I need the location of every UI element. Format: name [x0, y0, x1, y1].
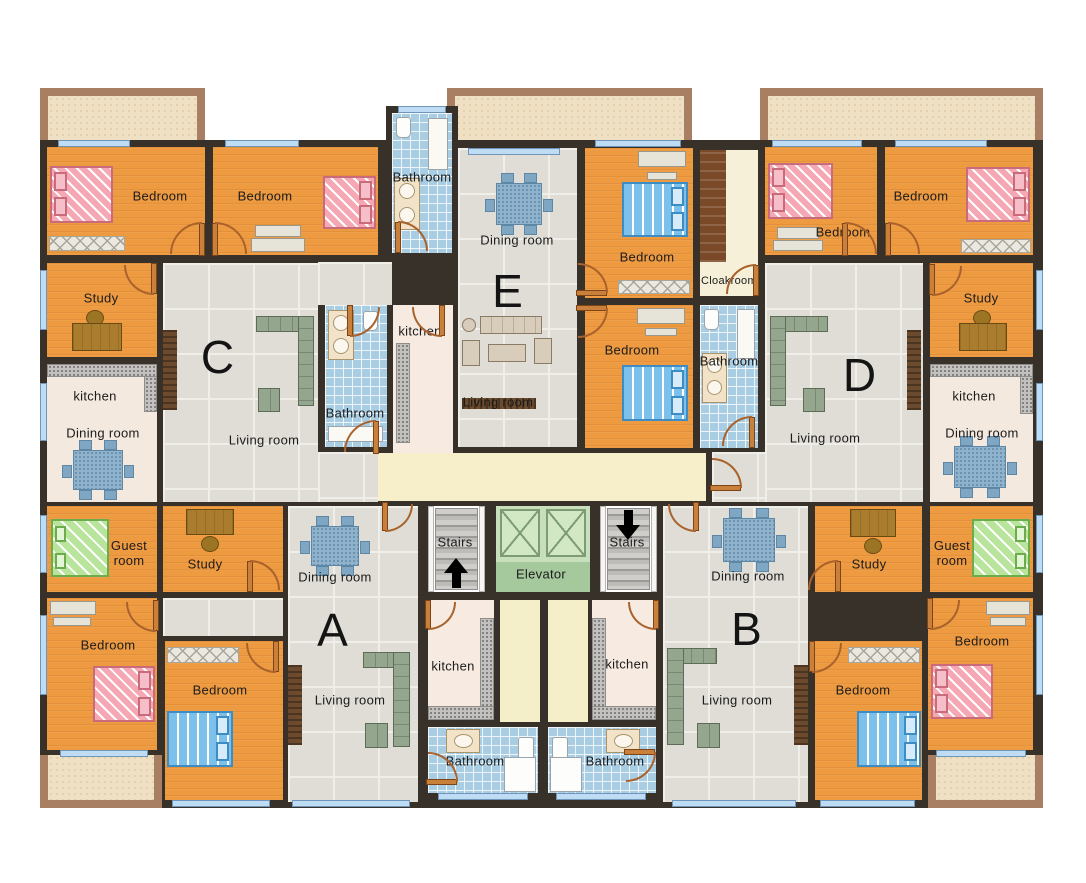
pillow: [935, 694, 948, 713]
pillow: [359, 181, 372, 200]
window: [895, 140, 987, 147]
double-bed: [323, 176, 376, 229]
door: [398, 221, 428, 251]
window: [772, 140, 862, 147]
pillow: [138, 671, 151, 690]
stair-rail: [428, 506, 434, 592]
window: [468, 148, 560, 155]
door: [428, 752, 458, 782]
pillow: [904, 742, 917, 761]
door: [628, 602, 656, 630]
stair-rail: [651, 506, 657, 592]
desk-chair-icon: [201, 536, 219, 552]
room-label: Living room: [702, 693, 773, 708]
toilet-icon: [704, 309, 719, 330]
bathtub-icon: [428, 118, 448, 170]
room-label: Bedroom: [133, 189, 188, 204]
armchair: [258, 388, 280, 412]
unit-letter-c: C: [201, 330, 235, 384]
closet: [167, 647, 239, 663]
window: [40, 383, 47, 441]
dining-table: [73, 450, 123, 490]
kitchen-counter: [930, 364, 1033, 377]
balcony-top-left: [40, 88, 205, 147]
double-bed: [768, 163, 833, 219]
door: [930, 600, 960, 630]
window: [936, 750, 1026, 757]
balcony-top-center: [447, 88, 692, 148]
pillow: [671, 212, 684, 231]
stair-rail: [479, 506, 485, 592]
dresser: [251, 238, 305, 252]
unit-letter-d: D: [843, 348, 877, 402]
room-label: Stairs: [609, 535, 644, 550]
double-bed: [931, 664, 993, 719]
armchair: [697, 723, 720, 748]
room-label: Bathroom: [326, 406, 385, 421]
door: [250, 560, 280, 590]
pillow: [772, 193, 785, 212]
pillow: [904, 716, 917, 735]
kitchen-counter: [480, 618, 494, 720]
window: [1036, 615, 1043, 695]
sofa: [298, 316, 314, 406]
guest-bed: [51, 519, 109, 577]
double-bed: [857, 711, 921, 767]
pillow: [1013, 197, 1026, 216]
unit-letter-b: B: [731, 602, 763, 656]
window: [58, 140, 130, 147]
pillow: [1013, 172, 1026, 191]
room-label: Bedroom: [238, 189, 293, 204]
window: [556, 793, 646, 800]
dining-table: [311, 526, 359, 566]
window: [172, 800, 270, 807]
room-label: Study: [84, 291, 119, 306]
pillow: [138, 697, 151, 716]
door: [888, 222, 920, 254]
window: [40, 615, 47, 695]
pillow: [671, 187, 684, 206]
corridor: [378, 453, 706, 501]
room-label: Bathroom: [700, 354, 759, 369]
dresser: [647, 172, 677, 180]
dining-table: [496, 183, 542, 225]
door: [126, 602, 156, 632]
dresser: [50, 601, 96, 615]
room-label: Bedroom: [81, 638, 136, 653]
room-label: Study: [852, 557, 887, 572]
armchair: [534, 338, 552, 364]
pillow: [54, 172, 67, 191]
utility-shaft-right: [548, 600, 588, 722]
window: [225, 140, 299, 147]
tv-cabinet: [794, 665, 808, 745]
window: [595, 140, 681, 147]
unit-letter-e: E: [492, 264, 524, 318]
room-label: Stairs: [437, 535, 472, 550]
room-label: Dining room: [480, 233, 553, 248]
dresser: [986, 601, 1030, 615]
door: [578, 308, 608, 338]
room-label: kitchen: [431, 659, 474, 674]
room-label: Living room: [229, 433, 300, 448]
door: [428, 602, 456, 630]
door: [246, 643, 276, 673]
kitchen-counter: [592, 618, 606, 720]
kitchen-counter: [47, 364, 157, 377]
door: [170, 222, 202, 254]
closet: [961, 239, 1031, 253]
window: [292, 800, 410, 807]
dresser: [53, 617, 91, 626]
balcony-top-right: [760, 88, 1043, 147]
shower-icon: [504, 757, 536, 792]
balcony-bottom-right: [928, 755, 1043, 808]
door: [215, 222, 247, 254]
door: [350, 307, 380, 337]
guest-bed: [972, 519, 1030, 577]
armchair: [462, 340, 480, 366]
elevator-car: [500, 509, 540, 557]
room-c-living: [163, 263, 318, 502]
wardrobe: [700, 150, 726, 262]
room-label: Bedroom: [894, 189, 949, 204]
door: [668, 504, 696, 532]
coffee-table: [488, 344, 526, 362]
double-bed: [50, 166, 113, 223]
window: [40, 515, 47, 573]
double-bed: [622, 365, 688, 421]
desk: [72, 323, 122, 351]
dresser: [773, 240, 823, 251]
window: [40, 270, 47, 330]
door: [808, 560, 838, 590]
pillow: [216, 742, 229, 761]
door: [845, 222, 877, 254]
room-label: Bedroom: [193, 683, 248, 698]
kitchen-counter: [144, 376, 157, 412]
hall-c-upper: [318, 262, 392, 305]
door: [124, 265, 154, 295]
dresser: [638, 151, 686, 167]
dresser: [645, 328, 677, 336]
shower-icon: [550, 757, 582, 792]
desk: [186, 509, 234, 535]
armchair: [365, 723, 388, 748]
double-bed: [966, 167, 1030, 222]
desk: [850, 509, 896, 537]
pillow: [671, 396, 684, 415]
stair-rail: [600, 506, 606, 592]
door: [626, 752, 656, 782]
room-label: Bedroom: [836, 683, 891, 698]
room-label: Elevator: [516, 567, 566, 582]
tv-cabinet: [907, 330, 921, 410]
door: [412, 307, 442, 337]
room-label: kitchen: [952, 389, 995, 404]
room-label: Living room: [463, 395, 534, 410]
closet: [618, 280, 690, 294]
room-label: kitchen: [73, 389, 116, 404]
window: [438, 793, 528, 800]
room-label: kitchen: [605, 657, 648, 672]
dining-table: [954, 446, 1006, 488]
closet: [848, 647, 920, 663]
stairs-up-arrow-head: [444, 558, 468, 573]
toilet-icon: [396, 117, 411, 138]
room-label: Living room: [790, 431, 861, 446]
double-bed: [167, 711, 233, 767]
hall-c-lower: [318, 452, 378, 502]
sofa: [667, 648, 684, 745]
armchair: [803, 388, 825, 412]
tv-unit: [462, 318, 476, 332]
unit-letter-a: A: [317, 603, 349, 657]
tv-cabinet: [288, 665, 302, 745]
door: [344, 420, 376, 452]
closet: [49, 236, 125, 251]
room-label: Dining room: [945, 426, 1018, 441]
door: [726, 264, 756, 294]
kitchen-counter: [396, 343, 410, 443]
door: [712, 458, 742, 488]
window: [60, 750, 148, 757]
hall-a-strip: [163, 598, 283, 636]
elevator-car: [546, 509, 586, 557]
sofa: [770, 316, 786, 406]
window: [672, 800, 796, 807]
pillow: [1015, 526, 1026, 542]
stairs-down-arrow-icon: [624, 510, 633, 526]
room-label: Bedroom: [955, 634, 1010, 649]
stairs-up-arrow-icon: [452, 572, 461, 588]
double-bed: [622, 182, 688, 237]
room-label: Living room: [315, 693, 386, 708]
balcony-bottom-left: [40, 755, 162, 808]
room-label: Bathroom: [393, 170, 452, 185]
pillow: [935, 669, 948, 688]
room-label: Guest room: [104, 539, 154, 569]
kitchen-counter: [592, 706, 656, 720]
pillow: [1015, 553, 1026, 569]
dresser: [255, 225, 301, 237]
window: [1036, 515, 1043, 573]
door: [932, 266, 962, 296]
double-bed: [93, 666, 155, 722]
window: [1036, 383, 1043, 441]
room-label: Bedroom: [620, 250, 675, 265]
pillow: [216, 716, 229, 735]
door: [578, 263, 608, 293]
bathtub-icon: [737, 309, 755, 359]
door: [385, 504, 413, 532]
dresser: [637, 308, 685, 324]
pillow: [359, 205, 372, 224]
window: [398, 106, 446, 113]
sofa: [393, 652, 410, 747]
floor-plan: Bedroom Bedroom Bathroom Study kitchen D…: [0, 0, 1086, 883]
room-a-dining-living: [288, 506, 418, 802]
room-label: Study: [188, 557, 223, 572]
pillow: [55, 526, 66, 542]
utility-shaft-left: [500, 600, 540, 722]
kitchen-counter: [1020, 376, 1033, 414]
room-label: Bedroom: [605, 343, 660, 358]
dresser: [777, 227, 819, 239]
pillow: [54, 197, 67, 216]
sink-icon: [446, 729, 480, 753]
pillow: [671, 370, 684, 389]
pillow: [55, 553, 66, 569]
pillow: [772, 168, 785, 187]
window: [1036, 270, 1043, 330]
sofa: [480, 316, 542, 334]
window: [820, 800, 915, 807]
room-label: Dining room: [711, 569, 784, 584]
room-label: Guest room: [927, 539, 977, 569]
room-label: Dining room: [66, 426, 139, 441]
dining-table: [723, 518, 775, 562]
desk: [959, 323, 1007, 351]
door: [722, 416, 752, 446]
room-label: Dining room: [298, 570, 371, 585]
room-label: Study: [964, 291, 999, 306]
tv-cabinet: [163, 330, 177, 410]
kitchen-counter: [428, 706, 494, 720]
dresser: [990, 617, 1026, 626]
desk-chair-icon: [864, 538, 882, 554]
door: [812, 643, 842, 673]
